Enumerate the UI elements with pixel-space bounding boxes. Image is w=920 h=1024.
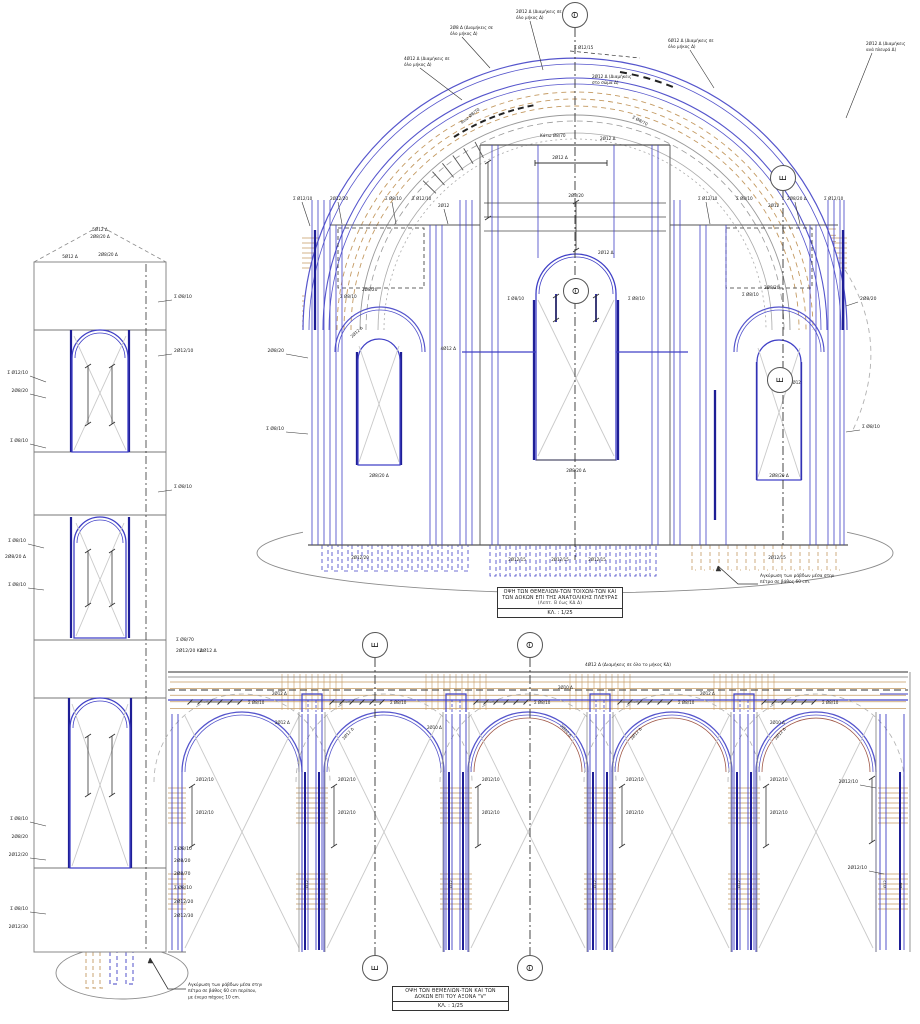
rebar-callout: 2Ø12/10 xyxy=(770,810,788,815)
rebar-callout: 2Ø8 Δ (Διαμήκεις σε xyxy=(450,25,493,30)
rebar-callout: Κάτω Ø8/70 xyxy=(540,133,566,138)
rebar-callout: 2Ø12 Δ (Διαμήκεις xyxy=(592,74,632,79)
rebar-callout: 2Ø12 Δ (Διαμήκεις xyxy=(866,41,906,46)
rebar-callout: 2Ø12/20 xyxy=(9,851,29,858)
rebar-callout: 4Ø12 Δ xyxy=(441,346,457,351)
rebar-callout: Σ Ø8/10 xyxy=(10,815,28,822)
rebar-callout: 2Ø12 Δ xyxy=(700,691,715,696)
rebar-callout: 6Ø12 Δ (Διαμήκεις σε xyxy=(668,38,714,43)
svg-text:E: E xyxy=(371,965,381,971)
svg-text:πέτρα σε βάθος 60 cm.: πέτρα σε βάθος 60 cm. xyxy=(760,578,810,585)
rebar-callout: 2Ø8/20 xyxy=(174,857,191,864)
rebar-callout: στο σώμα Δ) xyxy=(592,80,619,85)
rebar-callout: Ø12 xyxy=(448,880,453,888)
rebar-callout: 2Ø12 Δ xyxy=(272,691,287,696)
rebar-callout: Σ Ø8/10 xyxy=(742,292,759,297)
rebar-callout: 2Ø12 Δ xyxy=(598,250,614,255)
rebar-callout: 2Ø8/20 xyxy=(764,285,780,290)
rebar-callout: Σ Ø8/10 xyxy=(507,296,524,301)
drawing-canvas: Αγκύρωση των ράβδων μέσα στηνπέτρα σε βά… xyxy=(0,0,920,1024)
rebar-callout: Σ Ø8/10 xyxy=(248,700,265,705)
rebar-callout: όλο μήκος Δ) xyxy=(516,15,544,20)
rebar-callout: 2Ø8/20 Δ xyxy=(5,553,27,560)
rebar-callout: Σ Ø8/10 xyxy=(174,845,192,852)
rebar-callout: Σ Ø12/10 xyxy=(293,196,313,201)
svg-text:Θ: Θ xyxy=(571,11,581,18)
rebar-callout: Σ Ø12/10 xyxy=(698,196,718,201)
rebar-callout: 2Ø12/10 xyxy=(338,810,356,815)
rebar-callout: 2Ø12/15 xyxy=(508,557,526,562)
rebar-callout: 2Ø8/20 xyxy=(362,287,378,292)
rebar-callout: 2Ø8/70 xyxy=(174,870,191,877)
title-block-east-elevation: ΟΨΗ ΤΩΝ ΘΕΜΕΛΙΩΝ-ΤΩΝ ΤΟΙΧΩΝ-ΤΩΝ ΚΑΙ ΤΩΝ … xyxy=(497,587,623,618)
svg-text:Θ: Θ xyxy=(572,287,582,294)
rebar-callout: 2Ø8/20 xyxy=(11,833,28,840)
rebar-callout: 2Ø12/10 xyxy=(196,810,214,815)
svg-text:E: E xyxy=(371,642,381,648)
rebar-callout: 2Ø10 Δ xyxy=(770,720,785,725)
rebar-callout: 2Ø12/20 xyxy=(330,196,348,201)
rebar-callout: 2Ø8/20 xyxy=(860,295,877,302)
rebar-elevation-drawing: Αγκύρωση των ράβδων μέσα στηνπέτρα σε βά… xyxy=(0,0,920,1024)
rebar-callout: 2Ø12/30 xyxy=(174,912,194,919)
axisv-title-line2: ΔΟΚΩΝ ΕΠΙ ΤΟΥ ΑΞΟΝΑ "V" xyxy=(395,994,506,1000)
rebar-callout: 5Ø12 Δ xyxy=(92,227,108,232)
rebar-callout: 2Ø10 Δ xyxy=(558,685,573,690)
rebar-callout: Ø12 xyxy=(592,880,597,888)
rebar-callout: Σ Ø8/10 xyxy=(8,581,26,588)
rebar-callout: 2Ø12/15 xyxy=(768,555,786,560)
east-title-scale: ΚΛ. : 1/25 xyxy=(498,608,622,617)
rebar-callout: 2Ø12/10 xyxy=(839,778,859,785)
svg-text:Αγκύρωση των ράβδων μέσα στην: Αγκύρωση των ράβδων μέσα στην xyxy=(760,572,835,579)
rebar-callout: Σ Ø8/70 xyxy=(176,636,194,643)
rebar-callout: 2Ø12 xyxy=(768,203,780,208)
rebar-callout: Σ Ø8/10 xyxy=(340,294,357,299)
rebar-callout: Σ Ø8/10 xyxy=(8,537,26,544)
rebar-callout: 2Ø8/20 xyxy=(11,387,28,394)
rebar-callout: όλο μήκος Δ) xyxy=(450,31,478,36)
rebar-callout: 2Ø8/20 xyxy=(267,347,284,354)
rebar-callout: Ø12 xyxy=(736,880,741,888)
rebar-callout: 2Ø12 Δ xyxy=(600,136,616,141)
rebar-callout: Σ Ø8/10 xyxy=(174,293,192,300)
rebar-callout: 2Ø12/10 xyxy=(482,777,500,782)
rebar-callout: Σ Ø8/10 xyxy=(736,196,753,201)
rebar-callout: Σ Ø8/10 xyxy=(678,700,695,705)
rebar-callout: 2Ø12 Δ xyxy=(552,155,568,160)
rebar-callout: Σ Ø8/10 xyxy=(174,483,192,490)
rebar-callout: ανά πλευρά Δ) xyxy=(866,47,896,52)
rebar-callout: Σ Ø12/10 xyxy=(824,196,844,201)
rebar-callout: όλο μήκος Δ) xyxy=(668,44,696,49)
rebar-callout: Σ Ø8/10 xyxy=(390,700,407,705)
rebar-callout: 2Ø8/20 xyxy=(568,193,584,198)
rebar-callout: 2Ø8/20 Δ xyxy=(787,196,807,201)
rebar-callout: Σ Ø8/10 xyxy=(534,700,551,705)
rebar-callout: 2Ø12/15 xyxy=(588,557,606,562)
east-title-line3: (Λεπτ. Β έως ΚΔ Δ) xyxy=(500,601,620,606)
rebar-callout: 2Ø12/10 xyxy=(848,864,868,871)
rebar-callout: 2Ø12/10 xyxy=(482,810,500,815)
svg-text:E: E xyxy=(779,175,789,181)
svg-text:Θ: Θ xyxy=(526,964,536,971)
rebar-callout: 4Ø12 Δ (Διαμήκεις σε όλο το μήκος ΚΔ) xyxy=(585,661,671,668)
rebar-callout: 2Ø12/10 xyxy=(626,777,644,782)
rebar-callout: Σ Ø8/10 xyxy=(174,884,192,891)
rebar-callout: 2Ø10 Δ xyxy=(427,725,442,730)
rebar-callout: 2Ø12/10 xyxy=(174,347,194,354)
rebar-callout: 2Ø8/20 Δ xyxy=(369,473,389,478)
rebar-callout: 2Ø8/20 Δ xyxy=(566,468,586,473)
rebar-callout: 2Ø12 Δ xyxy=(275,720,290,725)
rebar-callout: 2Ø12/30 xyxy=(9,923,29,930)
rebar-callout: 5Ø12 Δ xyxy=(62,254,78,259)
rebar-callout: 2Ø12 Δ (Διαμήκεις σε xyxy=(516,9,562,14)
rebar-callout: Σ Ø8/10 xyxy=(822,700,839,705)
rebar-callout: Σ Ø8/10 xyxy=(266,425,284,432)
rebar-callout: 4Ø12 Δ (Διαμήκεις σε xyxy=(404,56,450,61)
rebar-callout: 2Ø12/10 xyxy=(770,777,788,782)
rebar-callout: 2Ø8/20 Δ xyxy=(98,252,118,257)
rebar-callout: Σ Ø8/10 xyxy=(10,905,28,912)
rebar-callout: 2Ø8/20 Δ xyxy=(769,473,789,478)
rebar-callout: Ø12 xyxy=(304,880,309,888)
rebar-callout: 2Ø12/10 xyxy=(626,810,644,815)
rebar-callout: Σ Ø12/10 xyxy=(7,369,28,376)
rebar-callout: 2Ø12/15 xyxy=(551,557,569,562)
rebar-callout: Σ Ø12/15 xyxy=(574,45,594,50)
rebar-callout: 2Ø12/20 xyxy=(351,555,369,560)
rebar-callout: Σ Ø8/10 xyxy=(628,296,645,301)
rebar-callout: Σ Ø12/10 xyxy=(412,196,432,201)
svg-text:πέτρα σε βάθος 60 cm περίπου,: πέτρα σε βάθος 60 cm περίπου, xyxy=(188,987,256,994)
rebar-callout: 2Ø8/20 Δ xyxy=(90,234,110,239)
rebar-callout: Ø12 xyxy=(882,880,887,888)
rebar-callout: 2Ø12/10 xyxy=(196,777,214,782)
rebar-callout: όλο μήκος Δ) xyxy=(404,62,432,67)
rebar-callout: 2Ø12/10 xyxy=(338,777,356,782)
svg-text:με ένεμα πάχους 10 cm.: με ένεμα πάχους 10 cm. xyxy=(188,993,240,1000)
axisv-title-scale: ΚΛ. : 1/25 xyxy=(393,1001,508,1010)
rebar-callout: 2Ø12/20 xyxy=(174,898,194,905)
rebar-callout: Σ Ø8/10 xyxy=(385,196,402,201)
rebar-callout: Σ Ø8/10 xyxy=(10,437,28,444)
svg-text:Θ: Θ xyxy=(526,641,536,648)
rebar-callout: Ø8 xyxy=(898,882,903,888)
title-block-axis-v: ΟΨΗ ΤΩΝ ΘΕΜΕΛΙΩΝ-ΤΩΝ ΚΑΙ ΤΩΝ ΔΟΚΩΝ ΕΠΙ Τ… xyxy=(392,986,509,1011)
rebar-callout: Σ Ø8/10 xyxy=(862,423,880,430)
svg-text:E: E xyxy=(776,377,786,383)
rebar-callout: 2Ø12 Δ xyxy=(200,647,218,654)
svg-text:Αγκύρωση των ράβδων μέσα στην: Αγκύρωση των ράβδων μέσα στην xyxy=(188,981,263,988)
rebar-callout: 2Ø12 xyxy=(438,203,450,208)
